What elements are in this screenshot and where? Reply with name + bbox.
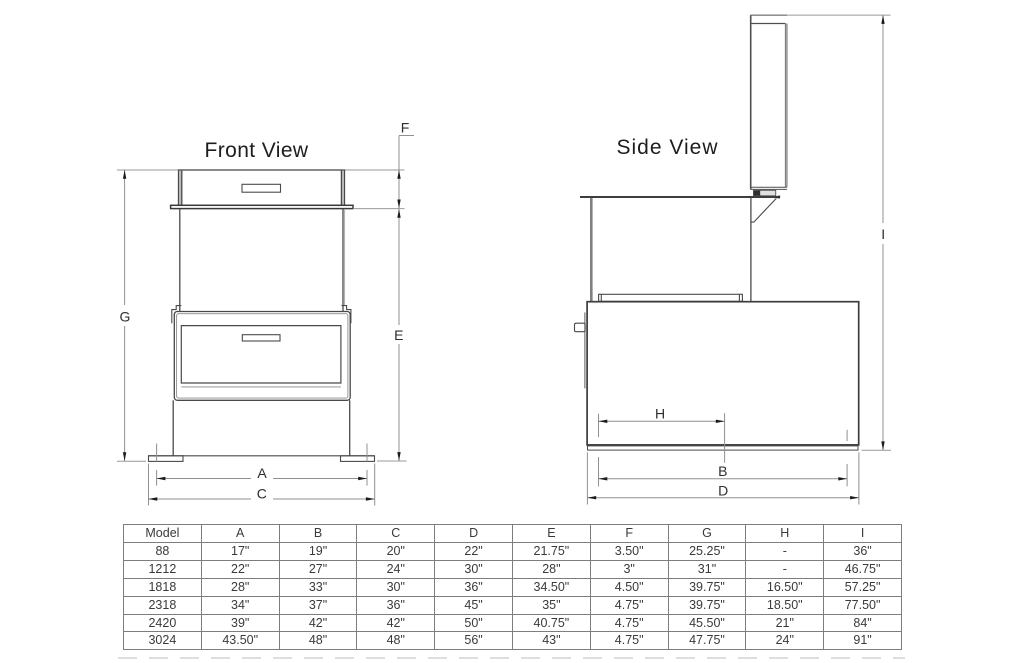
svg-text:I: I (881, 226, 885, 242)
svg-text:C: C (257, 485, 267, 501)
svg-text:E: E (394, 327, 403, 343)
svg-text:B: B (718, 463, 727, 479)
svg-text:Front View: Front View (205, 139, 309, 162)
svg-text:G: G (120, 308, 131, 324)
svg-text:F: F (401, 120, 410, 136)
svg-text:A: A (257, 465, 267, 481)
svg-text:D: D (718, 482, 728, 498)
svg-text:H: H (655, 405, 665, 421)
svg-text:Side View: Side View (616, 136, 718, 159)
